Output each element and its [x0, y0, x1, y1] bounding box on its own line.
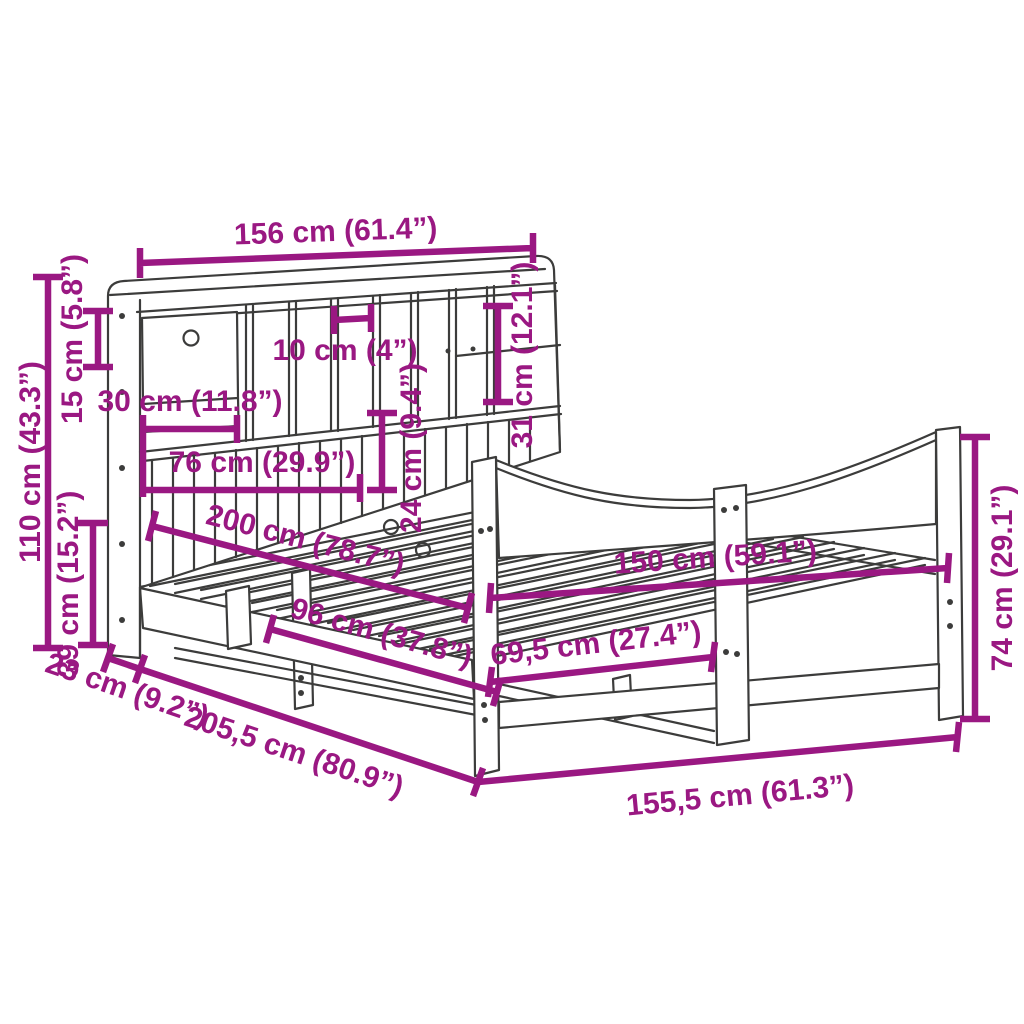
dimension-label-bed-length-outer: 205,5 cm (80.9”) — [180, 700, 407, 804]
diagram-svg: 156 cm (61.4”) 110 cm (43.3”) 15 cm (5.8… — [0, 0, 1024, 1024]
dimension-label-cubby-width: 10 cm (4”) — [272, 334, 417, 367]
dimension-label-footboard-height: 74 cm (29.1”) — [986, 485, 1019, 672]
dimension-label-headboard-width-top: 156 cm (61.4”) — [233, 211, 437, 251]
dimension-label-top-shelf-height: 15 cm (5.8”) — [56, 254, 89, 424]
dimension-label-headboard-total-height: 110 cm (43.3”) — [14, 361, 47, 563]
dimension-label-slat-panel-width: 76 cm (29.9”) — [169, 446, 356, 479]
dimension-label-bed-width-outer: 155,5 cm (61.3”) — [625, 769, 856, 823]
dimension-label-drawer-width: 30 cm (11.8”) — [97, 385, 282, 418]
headboard-leg — [226, 586, 251, 649]
footboard-centre-post — [714, 485, 749, 745]
footboard-near-post — [472, 457, 499, 776]
dimension-footboard-height: 74 cm (29.1”) — [960, 437, 1019, 719]
dimension-label-slat-panel-height: 24 cm (9.4”) — [395, 363, 428, 533]
dimension-label-shelf-opening-height: 31 cm (12.1”) — [506, 262, 539, 449]
bed-dimension-diagram: 156 cm (61.4”) 110 cm (43.3”) 15 cm (5.8… — [0, 0, 1024, 1024]
